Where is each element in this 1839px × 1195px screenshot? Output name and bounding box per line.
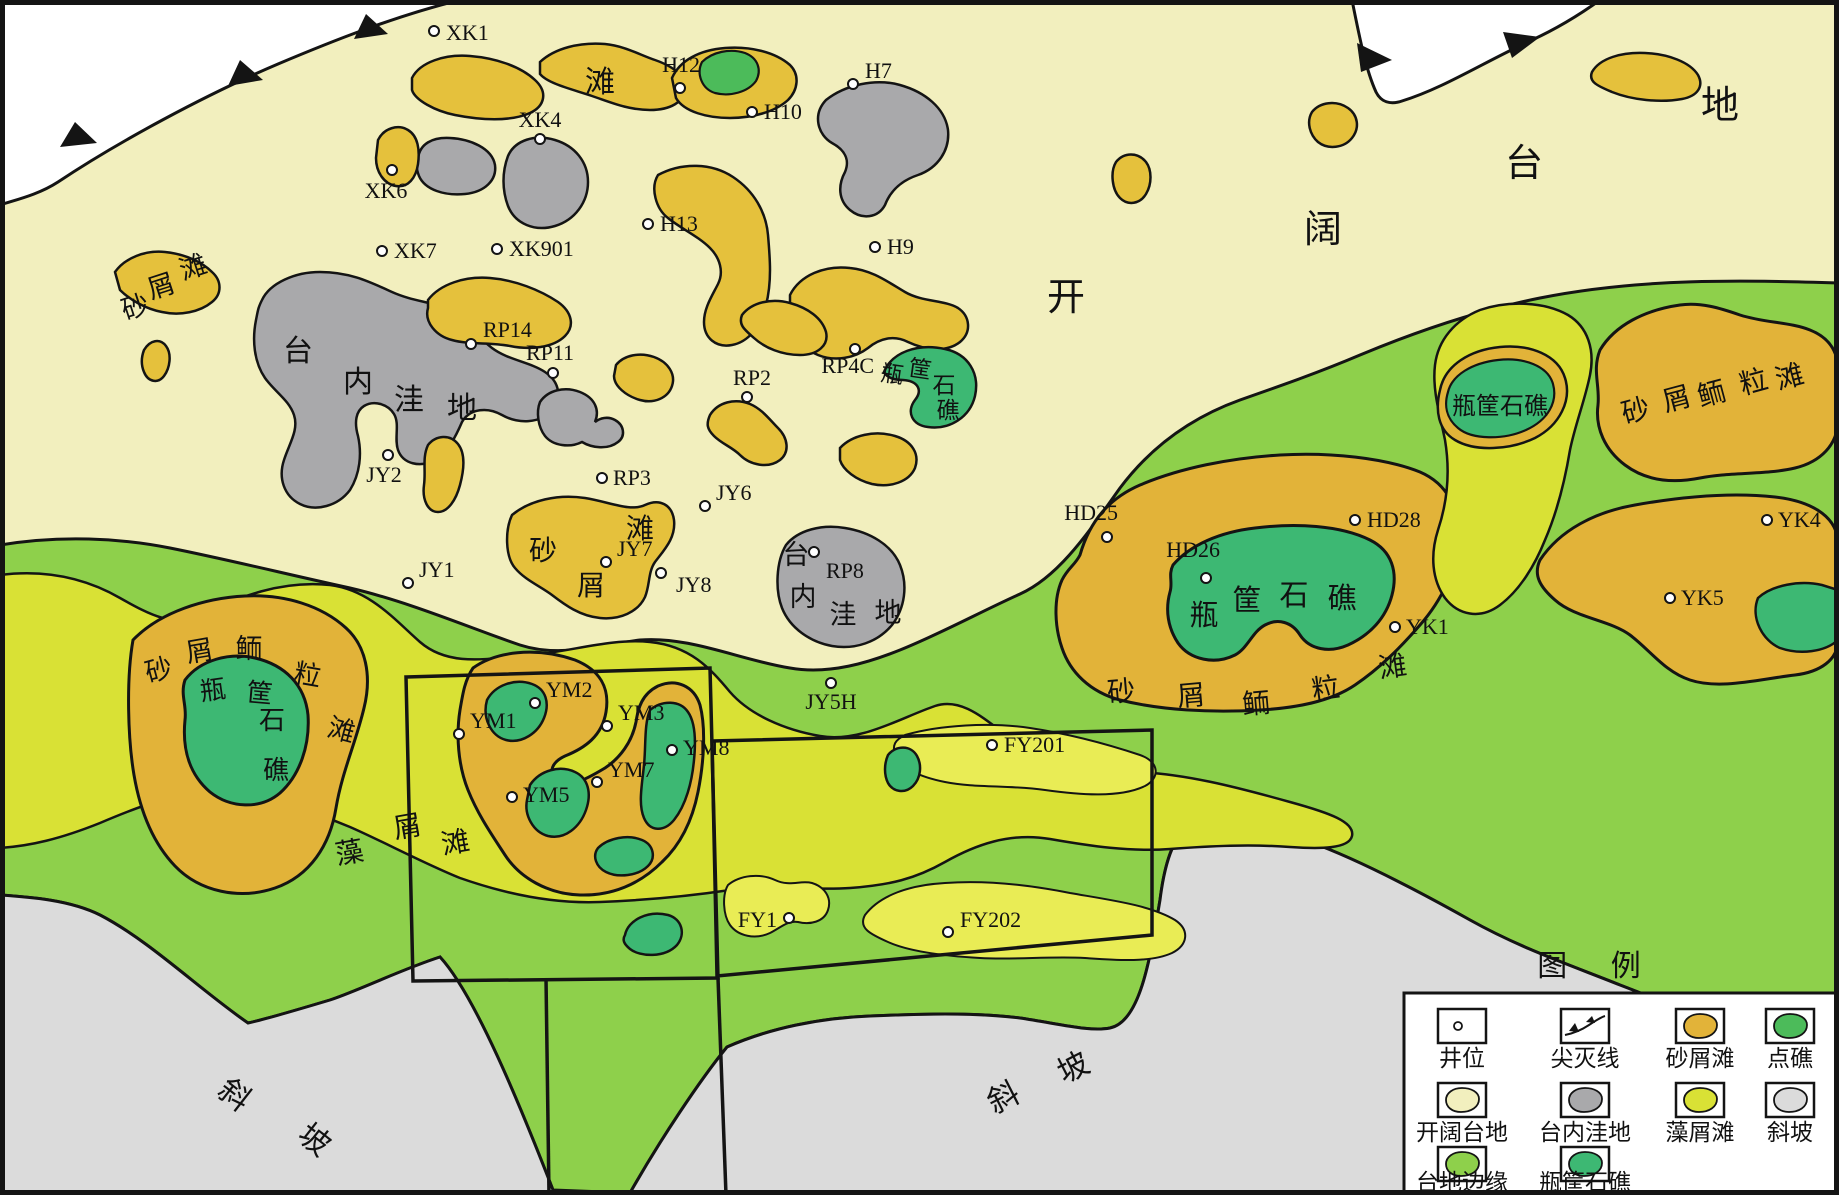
well-label: JY6 — [716, 480, 751, 505]
region-label: 屑 — [391, 810, 424, 845]
region-label: 礁 — [1327, 582, 1356, 615]
well-label: FY1 — [738, 907, 777, 932]
well-marker-icon[interactable] — [1201, 573, 1211, 583]
well-label: H9 — [887, 234, 914, 259]
region-label: 滩 — [1377, 649, 1409, 685]
well-marker-icon[interactable] — [548, 368, 558, 378]
well-label: RP11 — [526, 340, 574, 365]
well-marker-icon[interactable] — [1762, 515, 1772, 525]
well-label: RP3 — [613, 465, 651, 490]
well-marker-icon[interactable] — [592, 777, 602, 787]
well-marker-icon[interactable] — [826, 678, 836, 688]
well-marker-icon[interactable] — [601, 557, 611, 567]
well-label: HD26 — [1166, 537, 1220, 562]
legend-swatch-blob — [1774, 1014, 1807, 1038]
region-label: 藻 — [333, 835, 366, 871]
well-label: XK4 — [519, 107, 562, 132]
well-label: XK6 — [365, 178, 408, 203]
region-label: 开 — [1047, 277, 1085, 319]
region-label: 屑 — [184, 634, 216, 668]
region-label: 台 — [1505, 143, 1543, 185]
well-label: XK1 — [446, 20, 489, 45]
well-marker-icon[interactable] — [675, 83, 685, 93]
legend-label: 藻屑滩 — [1666, 1120, 1735, 1145]
well-label: HD25 — [1064, 500, 1118, 525]
legend-swatch-frame — [1561, 1009, 1609, 1043]
well-marker-icon[interactable] — [387, 165, 397, 175]
region-label: 鲕 — [236, 634, 263, 664]
region-label: 洼 — [830, 600, 857, 630]
well-label: YM7 — [608, 757, 654, 782]
legend-item: 砂屑滩 — [1666, 1009, 1735, 1071]
well-marker-icon[interactable] — [597, 473, 607, 483]
well-marker-icon[interactable] — [492, 244, 502, 254]
well-label: FY202 — [960, 907, 1021, 932]
well-label: YM2 — [546, 677, 592, 702]
well-marker-icon[interactable] — [507, 792, 517, 802]
legend-item: 斜坡 — [1766, 1083, 1814, 1145]
well-marker-icon[interactable] — [742, 392, 752, 402]
legend-label: 斜坡 — [1767, 1120, 1813, 1145]
legend-label: 开阔台地 — [1416, 1120, 1508, 1145]
well-marker-icon[interactable] — [377, 246, 387, 256]
well-marker-icon[interactable] — [643, 219, 653, 229]
legend-item: 点礁 — [1766, 1009, 1814, 1071]
region-label: 阔 — [1304, 209, 1342, 251]
region-label: 筐 — [246, 678, 274, 709]
region-label: 石 — [933, 373, 956, 398]
well-marker-icon[interactable] — [848, 79, 858, 89]
region-label: 砂 — [529, 535, 557, 567]
region-label: 洼 — [394, 384, 424, 417]
well-label: HD28 — [1367, 507, 1421, 532]
well-label: YM3 — [618, 700, 664, 725]
region-label: 瓶 — [879, 361, 905, 389]
well-marker-icon[interactable] — [466, 339, 476, 349]
legend-swatch-blob — [1446, 1088, 1479, 1112]
well-marker-icon[interactable] — [987, 740, 997, 750]
legend-swatch-blob — [1684, 1088, 1717, 1112]
region-label: 礁 — [937, 398, 960, 423]
well-label: YM1 — [470, 708, 516, 733]
region-label: 瓶筐石礁 — [1452, 393, 1548, 420]
legend-label: 点礁 — [1767, 1046, 1813, 1071]
region-label: 屑 — [577, 571, 605, 602]
well-label: XK7 — [394, 238, 437, 263]
region-label: 砂 — [1106, 675, 1137, 709]
region-label: 石 — [1279, 580, 1308, 612]
region-label: 地 — [447, 392, 477, 425]
well-label: JY2 — [366, 462, 401, 487]
reef-east-edge — [1756, 583, 1838, 652]
well-label: XK901 — [509, 236, 574, 261]
region-label: 瓶 — [1189, 599, 1218, 632]
reef-small-fy — [885, 748, 920, 791]
region-label: 礁 — [263, 756, 289, 785]
region-label: 石 — [259, 706, 285, 735]
well-label: YK4 — [1778, 507, 1821, 532]
well-marker-icon[interactable] — [943, 927, 953, 937]
region-label: 鲕 — [1241, 687, 1272, 721]
well-marker-icon[interactable] — [656, 568, 666, 578]
legend-label: 井位 — [1439, 1046, 1485, 1071]
well-marker-icon[interactable] — [383, 450, 393, 460]
well-label: H12 — [662, 52, 700, 77]
well-label: RP14 — [483, 317, 532, 342]
region-label: 瓶 — [198, 674, 228, 706]
well-label: YK5 — [1681, 585, 1724, 610]
legend-label: 台内洼地 — [1539, 1120, 1631, 1145]
facies-map: { "map_type": "carbonate platform sedime… — [0, 0, 1839, 1195]
legend-swatch-blob — [1774, 1088, 1807, 1112]
well-label: RP4C — [821, 353, 874, 378]
well-label: YM8 — [683, 735, 729, 760]
well-label: H10 — [764, 99, 802, 124]
well-label: H7 — [865, 58, 892, 83]
region-label: 地 — [875, 598, 902, 628]
well-marker-icon[interactable] — [602, 721, 612, 731]
legend-swatch-blob — [1569, 1088, 1602, 1112]
region-label: 屑 — [1176, 680, 1207, 713]
region-label: 内 — [790, 582, 817, 612]
legend-title: 图 例 — [1537, 950, 1659, 983]
well-label: RP8 — [826, 558, 864, 583]
legend-item: 井位 — [1438, 1009, 1486, 1071]
region-label: 滩 — [439, 825, 472, 861]
region-label: 粒 — [292, 658, 324, 692]
patch-reef-h12 — [700, 51, 759, 95]
legend-label: 尖灭线 — [1551, 1046, 1620, 1071]
region-label: 台 — [283, 335, 313, 368]
well-marker-icon[interactable] — [535, 134, 545, 144]
well-marker-icon[interactable] — [1665, 593, 1675, 603]
well-marker-icon[interactable] — [403, 578, 413, 588]
well-marker-icon[interactable] — [747, 107, 757, 117]
region-label: 内 — [343, 366, 373, 399]
well-marker-icon — [1454, 1022, 1462, 1030]
legend-swatch-blob — [1684, 1014, 1717, 1038]
well-marker-icon[interactable] — [429, 26, 439, 36]
well-label: YM5 — [523, 782, 569, 807]
well-label: JY5H — [805, 689, 856, 714]
region-label: 筐 — [1232, 584, 1261, 617]
well-label: RP2 — [733, 365, 771, 390]
well-marker-icon[interactable] — [667, 745, 677, 755]
well-label: JY1 — [419, 557, 454, 582]
well-marker-icon[interactable] — [700, 501, 710, 511]
region-label: 地 — [1701, 85, 1739, 127]
well-marker-icon[interactable] — [1102, 532, 1112, 542]
well-label: H13 — [660, 211, 698, 236]
well-marker-icon[interactable] — [1390, 622, 1400, 632]
region-label: 粒 — [1310, 671, 1342, 707]
well-marker-icon[interactable] — [809, 547, 819, 557]
legend-item: 藻屑滩 — [1666, 1083, 1735, 1145]
region-label: 筐 — [907, 356, 933, 384]
well-marker-icon[interactable] — [784, 913, 794, 923]
well-marker-icon[interactable] — [530, 698, 540, 708]
well-label: YK1 — [1406, 614, 1449, 639]
well-label: JY7 — [617, 536, 652, 561]
legend-item: 尖灭线 — [1551, 1009, 1620, 1071]
legend-label: 砂屑滩 — [1666, 1046, 1735, 1071]
region-label: 滩 — [585, 66, 615, 99]
region-label: 台 — [783, 540, 810, 570]
well-marker-icon[interactable] — [870, 242, 880, 252]
well-marker-icon[interactable] — [454, 729, 464, 739]
well-label: FY201 — [1004, 732, 1065, 757]
well-label: JY8 — [676, 572, 711, 597]
well-marker-icon[interactable] — [1350, 515, 1360, 525]
